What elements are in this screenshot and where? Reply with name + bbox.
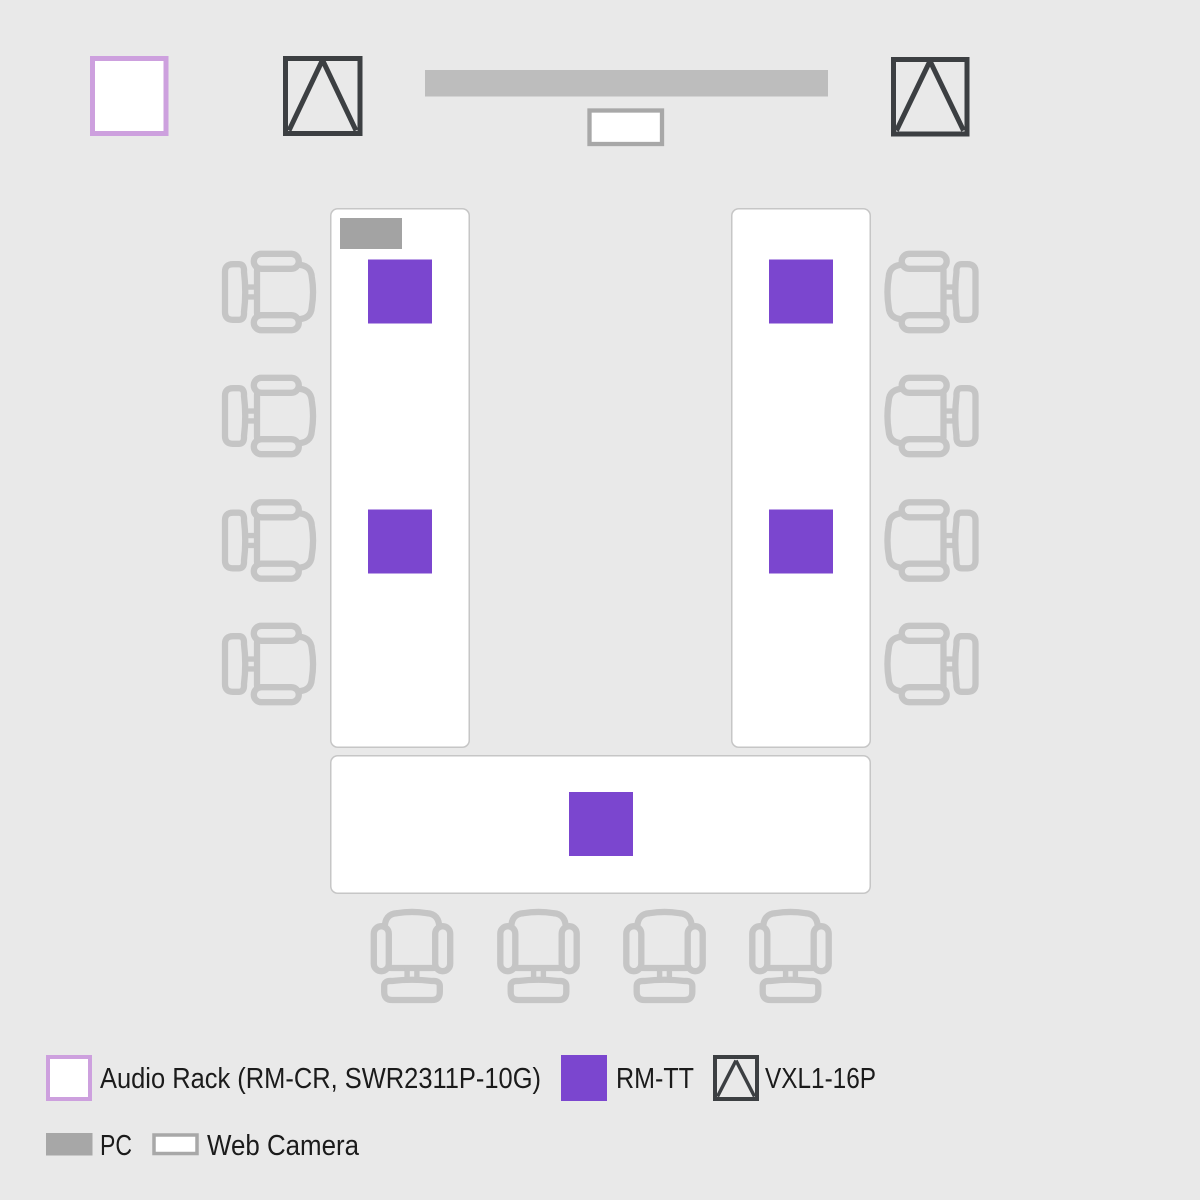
svg-text:RM-TT: RM-TT [616,1063,694,1095]
svg-text:Audio Rack (RM-CR, SWR2311P-10: Audio Rack (RM-CR, SWR2311P-10G) [100,1063,541,1095]
svg-text:VXL1-16P: VXL1-16P [765,1063,876,1095]
svg-text:PC: PC [100,1130,132,1162]
svg-text:Web Camera: Web Camera [207,1130,360,1162]
